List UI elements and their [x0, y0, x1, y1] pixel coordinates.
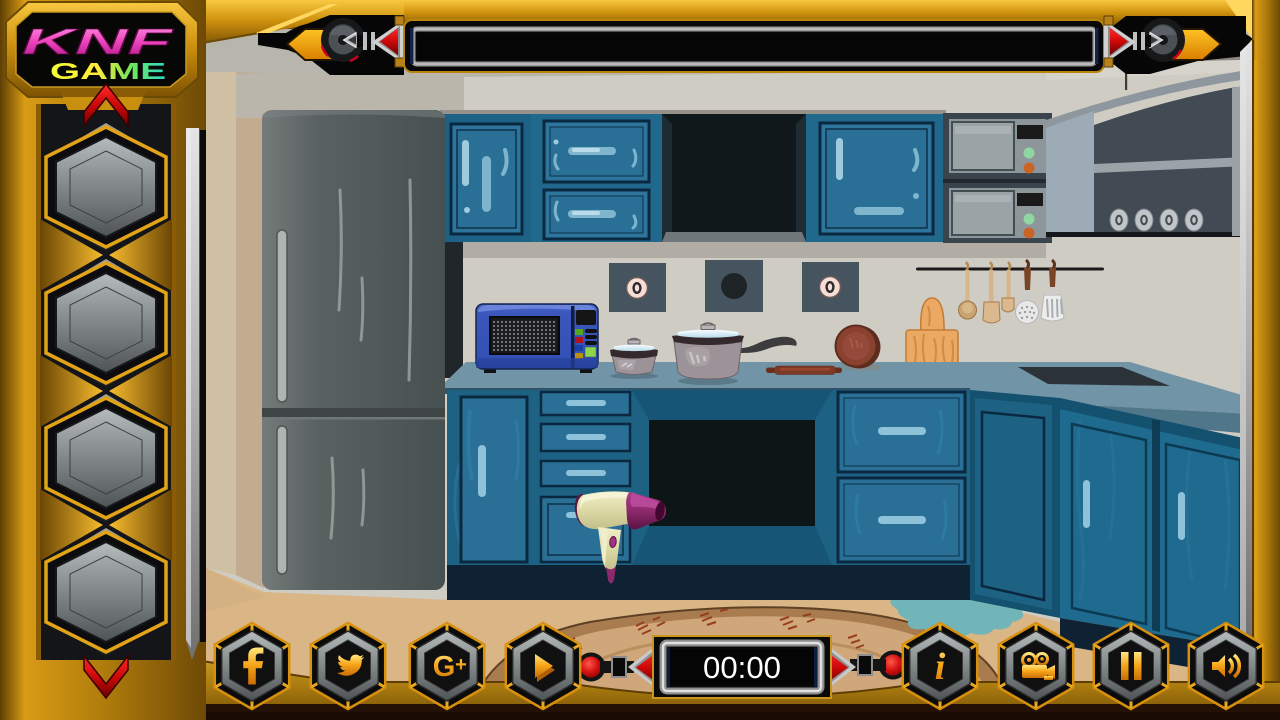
- svg-text:GAME: GAME: [50, 58, 166, 84]
- svg-text:+: +: [455, 654, 467, 676]
- svg-text:00:00: 00:00: [703, 650, 781, 685]
- svg-text:i: i: [935, 646, 946, 688]
- svg-text:KNF: KNF: [22, 21, 174, 62]
- svg-text:G: G: [433, 651, 456, 683]
